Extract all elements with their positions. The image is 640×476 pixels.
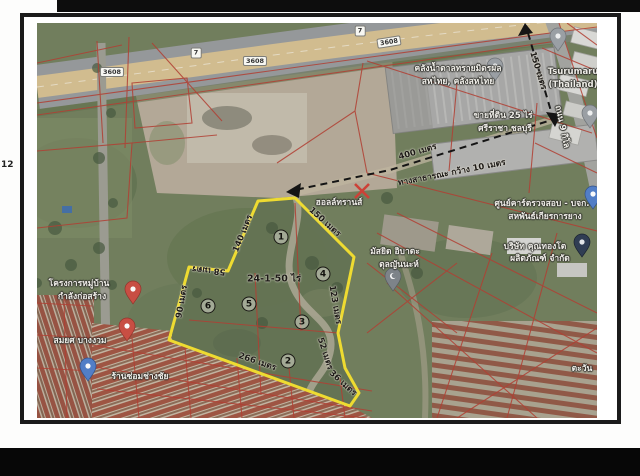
plot-area-label: 24-1-50 ไร่ xyxy=(247,275,301,286)
blue-roof-structure xyxy=(62,206,72,213)
label-land-sale-line2: ศรีราชา ชลบุรี xyxy=(478,125,532,135)
label-village-line2: กำลังก่อสร้าง xyxy=(58,293,106,303)
label-somyot: สมยศ บางงวม xyxy=(54,337,107,347)
route-shield-7: 7 xyxy=(355,26,366,37)
label-repair-shop: ร้านซ่อมช่างชัย xyxy=(111,373,168,383)
scanned-page: 12 xyxy=(0,0,640,476)
plot-point-4: 4 xyxy=(316,267,331,282)
label-village-line1: โครงการหมู่บ้าน xyxy=(49,280,110,290)
route-badge-3608: 3608 xyxy=(100,67,124,77)
label-inspection-line1: ศูนย์คาร์ตรวจสอบ - บจก. xyxy=(495,200,590,210)
plot-point-5: 5 xyxy=(242,297,257,312)
label-tsurumaru-line2: (Thailand) xyxy=(548,81,597,91)
scan-artifact-bottom-bar xyxy=(0,448,640,476)
scan-artifact-top-bar xyxy=(57,0,640,12)
route-shield-7: 7 xyxy=(191,48,202,59)
label-hall-trans: ฮอลล์ทรานส์ xyxy=(316,199,363,209)
plot-point-3: 3 xyxy=(295,315,310,330)
plot-point-1: 1 xyxy=(274,230,289,245)
label-mosque-line1: มัสยิด อิบาดะ xyxy=(370,248,420,258)
label-mosque-line2: ตุลญันนะห์ xyxy=(379,261,419,271)
label-tawan: ตะวัน xyxy=(572,365,593,375)
label-inspection-line2: สหพันธ์เกียรการยาง xyxy=(508,213,581,223)
label-company-line2: ผลิตภัณฑ์ จำกัด xyxy=(510,255,570,265)
label-warehouse-line2: สหไทย, คลังสหไทย xyxy=(422,78,495,88)
page-fragment: 12 xyxy=(1,160,14,170)
measure-58m: 58 เมตร xyxy=(192,262,226,275)
plot-point-6: 6 xyxy=(201,299,216,314)
route-badge-3608: 3608 xyxy=(243,56,267,66)
label-company-line1: บริษัท คุณทองโต xyxy=(504,243,567,253)
plot-point-2: 2 xyxy=(281,354,296,369)
satellite-map-image: 3608 7 3608 7 3608 คลังน้ำตาลทรายมิตรผล … xyxy=(37,23,597,418)
label-land-sale-line1: ขายที่ดิน 25 ไร่ xyxy=(473,112,532,122)
label-warehouse-line1: คลังน้ำตาลทรายมิตรผล xyxy=(415,65,502,75)
label-tsurumaru-line1: Tsurumaru xyxy=(548,68,597,78)
